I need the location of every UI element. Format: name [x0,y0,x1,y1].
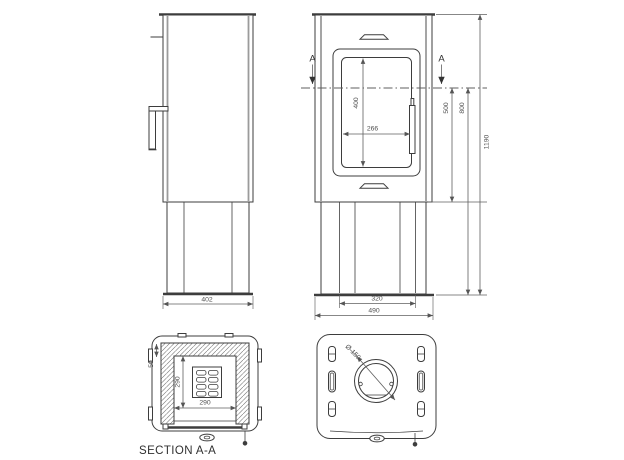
side-pedestal [167,202,249,293]
dim-label-800: 800 [459,102,466,114]
pendant-ball [243,441,248,446]
dim-label-402: 402 [201,297,213,304]
damper-knob [200,434,214,441]
top-view: Ø 150 [317,335,436,447]
section-title: SECTION A-A [139,445,216,457]
dim-label-500: 500 [443,102,450,114]
dim-label-490: 490 [368,308,380,315]
door-handle-front [410,99,416,154]
technical-drawing: 402 A A 400 266 [0,0,624,460]
dim-label-section-width-290: 290 [199,400,211,407]
door-hinge [242,424,247,429]
side-view: 402 [149,15,257,310]
grate [193,367,222,398]
dim-label-1190: 1190 [484,134,491,149]
front-pedestal [321,202,426,294]
casing-tab [258,407,262,420]
door-hinge [163,424,168,429]
dim-label-320: 320 [371,296,383,303]
casing-tab [178,334,186,338]
pendant-ball [413,442,418,447]
side-body [163,15,253,202]
section-marker-right: A [438,54,445,65]
damper-knob-top [370,435,384,442]
handle-grip [149,111,156,149]
air-slot [360,35,388,39]
section-marker-left: A [309,54,316,65]
dim-label-266: 266 [367,126,379,133]
casing-tab [258,349,262,362]
dim-label-section-depth-290: 290 [175,376,182,388]
section-view: 290 290 50 SECTION A-A [139,334,262,458]
dim-label-50: 50 [148,360,155,368]
handle-arm [149,107,168,112]
front-view: A A 400 266 500 800 1190 320 490 [301,15,491,321]
handle-bar [410,106,416,154]
casing-tab [149,407,153,420]
ash-lever [360,184,388,188]
casing-tab [149,349,153,362]
dim-label-400: 400 [353,97,360,109]
casing-tab [225,334,233,338]
